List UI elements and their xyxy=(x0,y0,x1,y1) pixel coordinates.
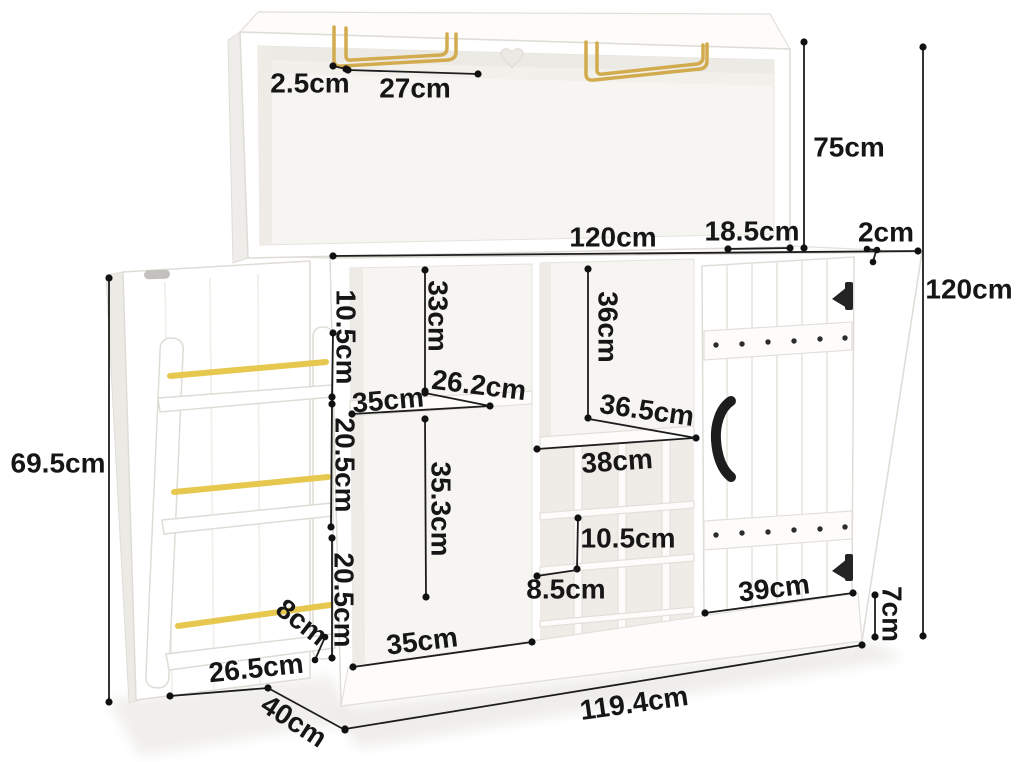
dimension-diagram: 2.5cm 27cm 75cm 120cm 18.5cm 2c xyxy=(0,0,1020,762)
dim-label: 35cm xyxy=(351,381,425,418)
dim-label: 20.5cm xyxy=(329,553,360,648)
dim-door-rack-top-section: 10.5cm xyxy=(328,290,361,401)
dim-label: 2.5cm xyxy=(270,68,349,99)
dim-label: 8.5cm xyxy=(526,574,605,605)
dim-wine-slot-width: 8.5cm xyxy=(526,570,605,605)
dim-label: 35.3cm xyxy=(426,462,457,557)
dim-label: 10.5cm xyxy=(331,290,362,385)
dim-label: 75cm xyxy=(813,132,885,163)
cabinet-diagram-svg: 2.5cm 27cm 75cm 120cm 18.5cm 2c xyxy=(0,0,1020,762)
dim-glass-rack-offset: 2.5cm xyxy=(270,62,349,98)
dim-label: 10.5cm xyxy=(581,523,676,554)
dim-label: 69.5cm xyxy=(11,448,106,479)
dim-label: 38cm xyxy=(580,443,654,479)
dim-label: 33cm xyxy=(423,280,454,352)
dim-label: 27cm xyxy=(379,73,451,104)
dim-label: 20.5cm xyxy=(330,418,361,513)
dim-label: 7cm xyxy=(877,586,908,642)
door-edge-handle xyxy=(144,270,170,280)
dim-label: 120cm xyxy=(569,222,656,253)
dim-door-rack-mid-section: 20.5cm xyxy=(327,400,360,530)
dim-total-height: 120cm xyxy=(919,43,1012,639)
dim-label: 18.5cm xyxy=(705,216,800,247)
dim-door-rack-height: 69.5cm xyxy=(11,274,113,705)
dim-label: 120cm xyxy=(925,274,1012,305)
dim-label: 2cm xyxy=(858,217,914,248)
barn-door xyxy=(702,257,854,616)
dim-label: 36cm xyxy=(593,291,624,363)
dim-base-height: 7cm xyxy=(871,586,907,642)
dim-door-rack-bottom-section: 20.5cm xyxy=(328,534,359,661)
